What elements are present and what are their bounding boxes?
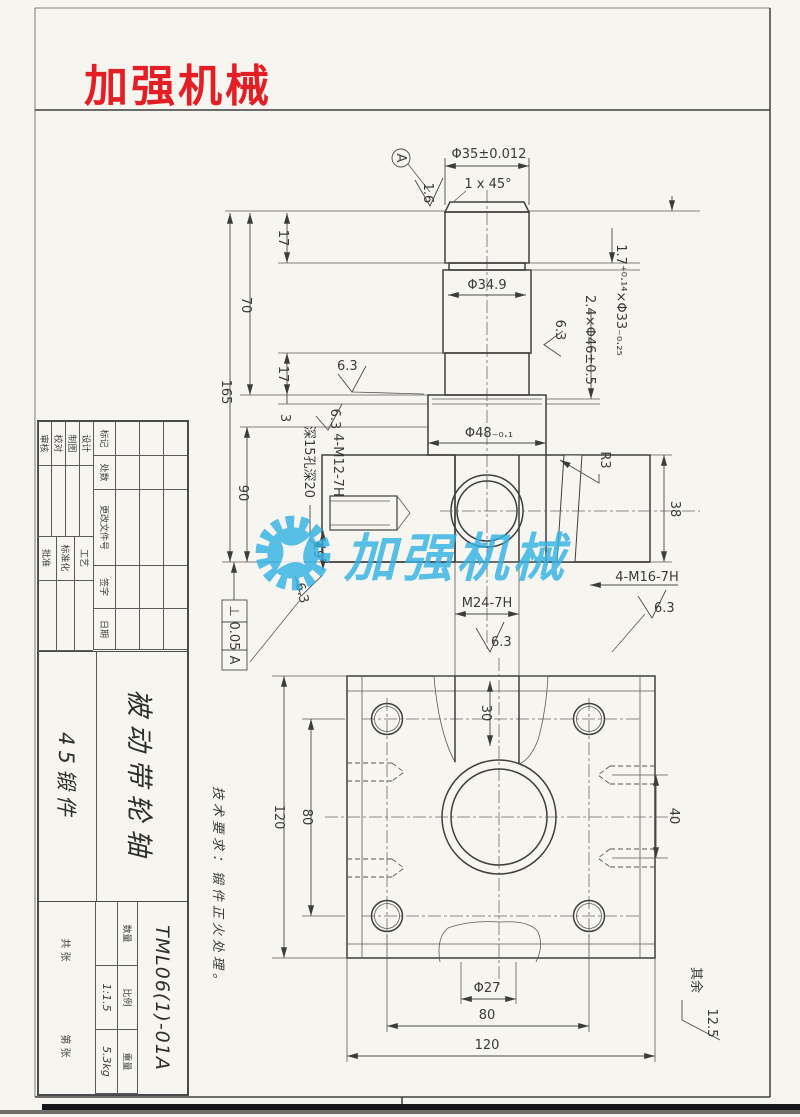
drawing-info-block: TML06(1)-01A 数量 比例 重量 1:1.5 5.3kg 共 张 第 … [39, 902, 187, 1094]
dim-120-side: 120 [271, 805, 286, 830]
dim-165: 165 [218, 380, 233, 405]
role-standard: 标准化 [56, 537, 75, 581]
scale-value: 1:1.5 [95, 966, 117, 1030]
dim-phi27: Φ27 [474, 981, 501, 996]
roles-grid: 设计 制图 校对 审核 工艺 标准化 批准 [37, 422, 93, 651]
callout-m24: M24-7H [462, 596, 513, 611]
callout-m16: 4-M16-7H [615, 570, 678, 585]
callout-m12: 4-M12-7H [330, 433, 345, 496]
sheet-number: 第 张 [60, 1034, 75, 1057]
sheets-total: 共 张 [60, 938, 75, 961]
dim-38: 38 [667, 501, 682, 518]
dim-90: 90 [235, 485, 250, 502]
revision-header-sign: 签字 [93, 566, 115, 609]
dim-groove46: 2.4×Φ46±0.5 [582, 295, 597, 385]
dim-80-bottom: 80 [479, 1008, 496, 1023]
qty-value [95, 902, 117, 966]
dim-70: 70 [238, 297, 253, 314]
scan-edge-shadow [0, 1110, 800, 1114]
dim-phi35: Φ35±0.012 [452, 147, 527, 162]
fcf-symbol: ⊥ [226, 605, 241, 616]
revision-table: 标记 处数 更改文件号 签字 日期 设计 制图 校对 审核 工艺 标准化 批准 [39, 422, 187, 652]
fcf-tolerance: 0.05 [226, 622, 241, 651]
revision-header-date: 日期 [93, 609, 115, 650]
rest-value: 12.5 [704, 1009, 719, 1038]
weight-value: 5.3kg [95, 1030, 117, 1094]
revision-header-mark: 标记 [93, 422, 115, 456]
role-process: 工艺 [74, 537, 93, 581]
qty-label: 数量 [117, 902, 137, 966]
roughness-63-m24: 6.3 [491, 635, 512, 650]
datum-a-label: A [393, 154, 408, 163]
dim-phi48: Φ48₋₀.₁ [465, 426, 513, 441]
scale-label: 比例 [117, 966, 137, 1030]
feature-control-frame: ⊥ 0.05 A [222, 562, 247, 670]
roughness-63-groove46: 6.3 [552, 320, 567, 341]
part-name: 被动带轮轴 [96, 652, 187, 901]
front-view-dimensions: Φ35±0.012 1 x 45° A 1.6 17 70 165 17 3 9… [218, 147, 700, 676]
revision-header-count: 处数 [93, 456, 115, 490]
company-logo: 加强机械 [84, 50, 272, 114]
role-audit: 审核 [37, 422, 51, 466]
dim-chamfer: 1 x 45° [464, 177, 511, 192]
fcf-datum: A [226, 656, 241, 665]
title-block: 标记 处数 更改文件号 签字 日期 设计 制图 校对 审核 工艺 标准化 批准 [37, 420, 189, 1096]
dim-17-low: 17 [275, 366, 290, 383]
revision-header: 标记 处数 更改文件号 签字 日期 [93, 422, 115, 651]
part-material: 45锻件 [39, 652, 96, 901]
roughness-1-6: 1.6 [420, 183, 435, 204]
tech-requirements: 技术要求：锻件正火处理。 [210, 786, 225, 990]
dim-120-bottom: 120 [475, 1038, 500, 1053]
callout-r3: R3 [597, 451, 612, 468]
default-roughness: 其余 12.5 [682, 967, 720, 1040]
side-tapped-holes [347, 763, 655, 877]
dim-3: 3 [277, 414, 292, 422]
roughness-63-m16: 6.3 [654, 601, 675, 616]
dim-19: 19 [310, 542, 325, 559]
role-approve: 批准 [37, 537, 56, 581]
bottom-view [325, 658, 678, 985]
dim-30: 30 [478, 705, 493, 722]
role-design: 设计 [79, 422, 93, 466]
roughness-63-journal: 6.3 [337, 359, 358, 374]
roughness-63-m12: 6.3 [327, 409, 342, 430]
dim-80-side: 80 [299, 809, 314, 826]
dim-17-top: 17 [275, 230, 290, 247]
callout-m12-depth: 深15孔深20 [301, 426, 316, 498]
part-name-block: 被动带轮轴 45锻件 [39, 652, 187, 902]
weight-label: 重量 [117, 1030, 137, 1094]
rest-label: 其余 [688, 967, 704, 993]
role-check: 校对 [51, 422, 65, 466]
drawing-sheet: .o{stroke:#3f3f3f;stroke-width:1.5;fill:… [0, 0, 800, 1117]
revision-empty-rows [115, 422, 187, 651]
drawing-number: TML06(1)-01A [137, 902, 187, 1094]
revision-header-docno: 更改文件号 [93, 490, 115, 566]
dim-phi349: Φ34.9 [467, 278, 506, 293]
role-draft: 制图 [65, 422, 79, 466]
dim-40: 40 [666, 808, 681, 825]
roughness-63-flange: 6.3 [291, 581, 311, 605]
dim-groove33: 1.7⁺⁰·¹⁴×Φ33₋₀.₂₅ [613, 244, 628, 356]
